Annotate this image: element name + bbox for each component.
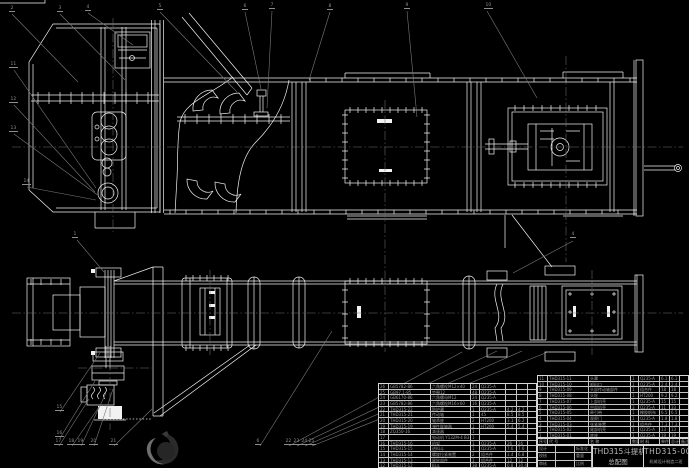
bom-cell: Q235-A (480, 463, 506, 468)
sheet-title: 总配图 (593, 457, 643, 467)
bom-row: 审核比例 (538, 461, 592, 468)
part-callout: 1 (72, 232, 78, 238)
bom-cell: 尾部机壳 (589, 427, 631, 432)
inspection-hatch (115, 32, 150, 68)
bom-cell (528, 429, 537, 434)
bom-cell (480, 429, 506, 434)
bom-cell: 8.5 (517, 412, 528, 417)
part-callout: 6 (242, 4, 248, 10)
bom-header-cell: 序号 (538, 439, 548, 444)
bom-cell: THD315-21 (389, 412, 431, 417)
bom-cell (680, 422, 689, 427)
part-callout: 12 (9, 97, 18, 103)
bom-cell (517, 390, 528, 395)
bom-cell: 六角螺栓M12×40 (431, 384, 471, 389)
bom-cell: 1 (631, 422, 639, 427)
bom-cell: 7.6 (517, 446, 528, 451)
bom-cell: 减速器 (431, 429, 471, 434)
bom-cell: 9 (538, 387, 548, 392)
bom-header-cell: 备注 (680, 439, 689, 444)
bom-cell: 24 (471, 384, 480, 389)
bom-cell: 1 (631, 399, 639, 404)
bom-cell (506, 435, 517, 440)
bom-cell (506, 395, 517, 400)
bom-cell: 7.3 (660, 422, 670, 427)
bom-cell: 9.2 (660, 393, 670, 398)
bom-cell: 1 (471, 458, 480, 463)
bom-cell: 防护罩 (431, 407, 471, 412)
bom-cell: 轴承座 (431, 418, 471, 423)
bom-cell: HT200 (480, 418, 506, 423)
bom-cell: 8.5 (506, 412, 517, 417)
part-callout: 14 (22, 179, 31, 185)
bom-header-cell: 总计 (670, 439, 680, 444)
bom-cell (528, 412, 537, 417)
bom-cell: GB6170-86 (389, 395, 431, 400)
bom-cell: 6.5 (660, 410, 670, 415)
part-callout: 20 (89, 439, 98, 445)
drawing-number-cell: THD315-00 机械设计制造二班 (644, 446, 688, 467)
bom-cell: 1 (471, 424, 480, 429)
bom-cell (528, 407, 537, 412)
bom-cell: 标准化 (575, 446, 592, 452)
bom-cell: 组合件 (480, 452, 506, 457)
bom-cell: 1 (631, 387, 639, 392)
bom-cell: Q235-A (480, 441, 506, 446)
bom-cell: THD315-13 (389, 458, 431, 463)
bom-cell: THD315-19 (389, 424, 431, 429)
bom-cell: 15 (670, 399, 680, 404)
bom-cell: 3.1 (506, 418, 517, 423)
plan-head-section (487, 266, 643, 361)
bom-cell (506, 429, 517, 434)
title-block: 设计标准化校核重量审核比例 THD315斗提机 总配图 THD315-00 机械… (537, 445, 689, 468)
bom-row: 设计标准化 (538, 446, 592, 453)
bom-cell: 18 (670, 387, 680, 392)
bom-cell: 26 (517, 441, 528, 446)
bom-cell (528, 452, 537, 457)
bom-cell: 16 (379, 441, 389, 446)
bom-cell: 12 (506, 458, 517, 463)
bom-cell: 4.2 (517, 407, 528, 412)
bom-cell: 13 (379, 458, 389, 463)
part-callout: 10 (484, 3, 493, 9)
bom-cell: 1 (471, 412, 480, 417)
part-callout: 4 (85, 5, 91, 11)
part-callout: 15 (55, 405, 64, 411)
bom-cell: 13 (670, 427, 680, 432)
bom-cell (680, 376, 689, 381)
bom-cell (680, 405, 689, 410)
bom-cell (528, 390, 537, 395)
bom-cell: THD315-06 (548, 405, 589, 410)
bom-header-cell: 数量 (631, 439, 639, 444)
bom-cell: Q235-A (639, 405, 660, 410)
bom-cell: 12 (517, 458, 528, 463)
bom-cell: 2 (471, 452, 480, 457)
bom-cell: 7.6 (506, 446, 517, 451)
bom-row: 12THD315-12料斗38Q235-A0.830.4 (379, 463, 536, 468)
bom-cell (528, 446, 537, 451)
bom-cell: Q235-A (480, 395, 506, 400)
bom-cell: 卸料口 (589, 382, 631, 387)
part-callout: 25 (307, 439, 316, 445)
bom-cell: 1 (471, 429, 480, 434)
bom-cell: 审核 (538, 461, 556, 467)
bom-cell: 26 (506, 441, 517, 446)
part-callout: 17 (54, 439, 63, 445)
bom-cell: 电动机 Y132M-4 B3 (431, 435, 471, 440)
bom-cell: 6.5 (670, 410, 680, 415)
bom-cell: 13 (660, 427, 670, 432)
bom-cell: 6.8 (517, 452, 528, 457)
bom-cell: GB5782-86 (389, 401, 431, 406)
bom-cell (517, 429, 528, 434)
bom-table-left: 26GB5782-86六角螺栓M12×4024Q235-A25GB97.1-85… (378, 383, 537, 468)
bom-cell (680, 399, 689, 404)
bom-cell: 垫圈12 (431, 390, 471, 395)
bom-cell: 2.4 (670, 382, 680, 387)
bom-cell: 2 (538, 427, 548, 432)
cad-drawing-canvas: 2345678910111213141415161718192021622232… (0, 0, 689, 468)
bom-cell: Q235-A (480, 407, 506, 412)
bom-cell: Q235-A (480, 446, 506, 451)
part-callout: 4 (570, 232, 576, 238)
signature-grid: 设计标准化校核重量审核比例 (538, 446, 593, 467)
bom-cell: GB5782-86 (389, 384, 431, 389)
part-callout: 8 (327, 4, 333, 10)
bom-cell (680, 410, 689, 415)
bom-cell: 1 (631, 376, 639, 381)
bom-table-right: 11THD315-11头罩1Q235-A6.16.110THD315-10卸料口… (537, 375, 689, 438)
bom-cell: 组合件 (480, 458, 506, 463)
bom-cell: 组合件 (639, 422, 660, 427)
part-callout: 18 (67, 439, 76, 445)
bom-cell (556, 446, 575, 452)
bom-header-cell: 名 称 (589, 439, 631, 444)
bom-cell: THD315-22 (389, 407, 431, 412)
bom-cell: 传动轴 (431, 412, 471, 417)
bom-cell: 6.1 (660, 376, 670, 381)
bom-cell (506, 390, 517, 395)
crescent-watermark-icon (147, 431, 179, 464)
bom-cell: 头罩 (589, 376, 631, 381)
bom-cell: 12 (379, 463, 389, 468)
part-callout: 2 (9, 6, 15, 12)
bom-cell: 19 (379, 424, 389, 429)
bom-cell: 1 (471, 435, 480, 440)
bom-cell: 1.8 (660, 416, 670, 421)
bom-cell: 中部机壳 (589, 405, 631, 410)
bom-cell: THD315-08 (548, 393, 589, 398)
bom-cell: 24 (379, 395, 389, 400)
bom-cell: 26 (379, 384, 389, 389)
bom-cell: 六角螺母M12 (431, 395, 471, 400)
bom-cell: 0.8 (506, 463, 517, 468)
bom-cell: 弹性联轴器 (431, 424, 471, 429)
bom-cell: 牵引带 (589, 410, 631, 415)
bom-cell (528, 463, 537, 468)
bom-cell: 11 (660, 405, 670, 410)
inlet-chute-buckets (175, 13, 290, 213)
bom-cell: 观察门 (589, 416, 631, 421)
bom-cell: 2.4 (660, 382, 670, 387)
bom-cell: 橡胶帆布 (639, 410, 660, 415)
part-callout: 21 (109, 439, 118, 445)
bom-cell: 7.3 (670, 422, 680, 427)
bom-cell: Q235-A (639, 376, 660, 381)
bom-cell: 6.1 (670, 376, 680, 381)
bom-cell (517, 395, 528, 400)
bom-cell: 头轮 (589, 393, 631, 398)
bom-cell (680, 416, 689, 421)
bom-cell: 5 (538, 410, 548, 415)
drawing-number: THD315-00 (644, 446, 688, 458)
bom-cell: 组合件 (639, 387, 660, 392)
bom-cell: 11 (538, 376, 548, 381)
bom-cell: Q235-A (639, 382, 660, 387)
bom-cell: Q235-A (639, 416, 660, 421)
part-callout: 19 (76, 439, 85, 445)
bom-cell: 10 (538, 382, 548, 387)
bom-cell (528, 384, 537, 389)
bom-cell: HT200 (639, 393, 660, 398)
bom-cell: 1 (471, 407, 480, 412)
bom-cell: THD315-02 (548, 427, 589, 432)
bom-cell: THD315-11 (548, 376, 589, 381)
bom-cell: THD315-04 (548, 416, 589, 421)
bom-cell: 4.2 (506, 407, 517, 412)
bom-cell: THD315-09 (548, 387, 589, 392)
part-callout: 5 (157, 4, 163, 10)
bom-cell: THD315-20 (389, 418, 431, 423)
bom-cell: 头部传动轴部件 (589, 387, 631, 392)
bom-cell: 48 (471, 390, 480, 395)
bom-cell: THD315-14 (389, 452, 431, 457)
bom-cell: THD315-07 (548, 399, 589, 404)
bom-row: 校核重量 (538, 453, 592, 460)
bom-header-row: 序号代 号名 称数量材 料单件总计备注 (537, 438, 689, 445)
bom-cell: 30.4 (517, 463, 528, 468)
bom-cell (506, 384, 517, 389)
callout-leader-lines (12, 11, 573, 446)
bom-cell: 6.2 (517, 418, 528, 423)
sheet-corner (0, 0, 45, 3)
bom-cell: 1.8 (670, 416, 680, 421)
bom-cell: ZQ350-16 (389, 429, 431, 434)
part-callout: 3 (57, 6, 63, 12)
bom-cell (680, 387, 689, 392)
bom-cell: 进料斗 (431, 446, 471, 451)
bom-cell: 校核 (538, 453, 556, 459)
bom-cell: 1 (631, 382, 639, 387)
bom-cell: 1 (471, 446, 480, 451)
inspection-panel (342, 107, 430, 186)
bom-cell (517, 435, 528, 440)
bom-cell: Q235-A (639, 427, 660, 432)
bom-cell (556, 461, 575, 467)
bom-header-cell: 材 料 (639, 439, 660, 444)
bom-cell (528, 395, 537, 400)
bom-cell: 5.4 (517, 424, 528, 429)
bom-cell: 22 (379, 407, 389, 412)
bom-cell: Q235-A (480, 390, 506, 395)
bom-cell: 18 (379, 429, 389, 434)
bom-cell: THD315-15 (389, 446, 431, 451)
product-title: THD315斗提机 (593, 446, 643, 457)
bom-cell: 16 (471, 401, 480, 406)
part-callout: 11 (9, 62, 18, 68)
bom-cell: Q235-A (639, 399, 660, 404)
top-view-elevation (29, 13, 682, 267)
bom-cell (528, 441, 537, 446)
bom-cell: 33 (670, 405, 680, 410)
bom-cell: 3 (538, 422, 548, 427)
drawing-title-cell: THD315斗提机 总配图 (593, 446, 644, 467)
bom-cell: THD315-10 (548, 382, 589, 387)
bom-cell (506, 401, 517, 406)
part-callout: 13 (9, 126, 18, 132)
bom-cell: THD315-05 (548, 410, 589, 415)
bom-cell: GB97.1-85 (389, 390, 431, 395)
bom-cell: 3 (631, 405, 639, 410)
bom-cell (517, 384, 528, 389)
bom-cell (680, 427, 689, 432)
bom-cell: 上部机壳 (589, 399, 631, 404)
bom-cell: 1 (631, 410, 639, 415)
bom-cell: 设计 (538, 446, 556, 452)
part-callout: 6 (255, 439, 261, 445)
bom-cell (528, 435, 537, 440)
bom-cell: HT200 (480, 424, 506, 429)
bom-cell: 1 (631, 427, 639, 432)
bom-cell: 六角螺栓M16×60 (431, 401, 471, 406)
bom-cell: 1 (471, 441, 480, 446)
bom-cell (480, 435, 506, 440)
bom-cell: 张紧装置 (589, 422, 631, 427)
bom-cell (680, 382, 689, 387)
part-callout: 7 (269, 3, 275, 9)
bom-cell: 24 (471, 395, 480, 400)
bom-cell: 17 (379, 435, 389, 440)
part-callout: 16 (55, 431, 64, 437)
bom-cell (389, 435, 431, 440)
bom-cell (517, 401, 528, 406)
bom-cell: Q235-A (480, 401, 506, 406)
bom-cell: 15 (660, 399, 670, 404)
bom-cell (528, 418, 537, 423)
bom-cell: 尾轮部件 (431, 458, 471, 463)
bom-cell: 1 (631, 416, 639, 421)
bom-cell: Q235-A (480, 384, 506, 389)
organization-line: 机械设计制造二班 (644, 458, 688, 465)
bom-cell: THD315-12 (389, 463, 431, 468)
bom-cell: 20 (379, 418, 389, 423)
bom-cell: 料斗 (431, 463, 471, 468)
bom-cell: 4 (538, 416, 548, 421)
bom-cell: 8 (538, 393, 548, 398)
bom-cell: 15 (379, 446, 389, 451)
bom-cell: 25 (379, 390, 389, 395)
bom-cell (528, 458, 537, 463)
bom-cell: 14 (379, 452, 389, 457)
bom-cell: 45 (480, 412, 506, 417)
bom-cell (556, 453, 575, 459)
bom-cell: 2 (471, 418, 480, 423)
bom-cell: THD315-16 (389, 441, 431, 446)
bom-cell: 18 (660, 387, 670, 392)
bom-cell: 23 (379, 401, 389, 406)
bom-cell: 螺旋拉紧装置 (431, 452, 471, 457)
plan-panel-2 (342, 278, 430, 347)
bom-cell: 3.4 (506, 452, 517, 457)
bom-cell: 6 (538, 405, 548, 410)
bom-cell (528, 424, 537, 429)
bom-cell: 38 (471, 463, 480, 468)
bom-cell: 1 (631, 393, 639, 398)
bom-header-cell: 单件 (660, 439, 670, 444)
part-callout: 9 (404, 3, 410, 9)
bom-cell: 21 (379, 412, 389, 417)
bom-cell: 比例 (575, 461, 592, 467)
takeup-bay (485, 105, 607, 188)
bom-cell: 7 (538, 399, 548, 404)
bom-cell (680, 393, 689, 398)
bom-header-cell: 代 号 (548, 439, 589, 444)
bom-cell (528, 401, 537, 406)
bom-cell: THD315-03 (548, 422, 589, 427)
bom-cell: 5.4 (506, 424, 517, 429)
bom-cell: 机架 (431, 441, 471, 446)
bom-cell: 9.2 (670, 393, 680, 398)
bom-cell: 重量 (575, 453, 592, 459)
